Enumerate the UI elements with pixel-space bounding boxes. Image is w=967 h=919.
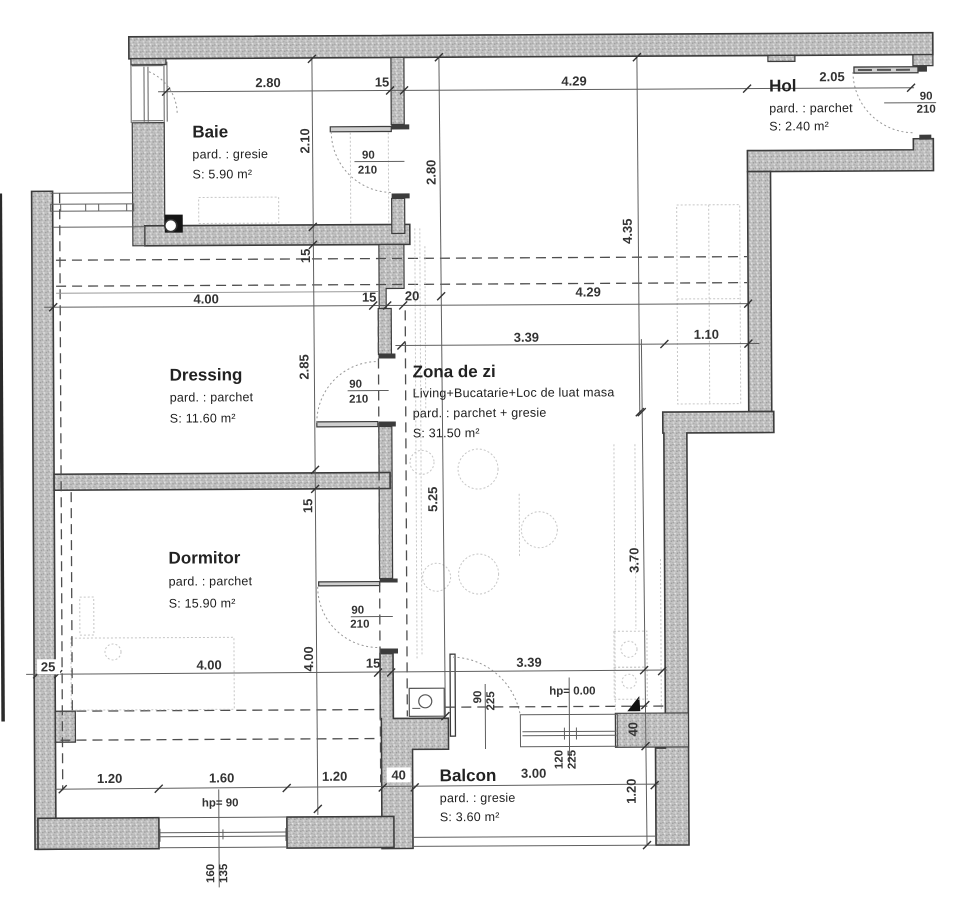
svg-text:2.85: 2.85 — [296, 354, 311, 379]
svg-text:S: 3.60 m²: S: 3.60 m² — [440, 810, 500, 824]
svg-text:20: 20 — [405, 288, 420, 303]
svg-text:S: 2.40 m²: S: 2.40 m² — [769, 119, 829, 133]
svg-text:2.80: 2.80 — [423, 160, 438, 185]
svg-text:Baie: Baie — [192, 122, 228, 141]
svg-text:3.39: 3.39 — [514, 330, 539, 345]
svg-text:3.70: 3.70 — [626, 548, 641, 573]
svg-text:4.29: 4.29 — [575, 284, 600, 299]
svg-text:25: 25 — [41, 659, 56, 674]
svg-text:hp= 90: hp= 90 — [202, 797, 239, 809]
svg-text:90: 90 — [362, 150, 375, 162]
svg-text:15: 15 — [366, 656, 381, 671]
svg-text:4.35: 4.35 — [620, 219, 635, 244]
svg-text:Balcon: Balcon — [440, 766, 497, 785]
svg-text:15: 15 — [375, 74, 390, 89]
svg-text:2.80: 2.80 — [255, 75, 280, 90]
svg-text:pard. : parchet: pard. : parchet — [170, 390, 254, 404]
svg-text:S: 5.90 m²: S: 5.90 m² — [192, 167, 252, 181]
svg-text:90: 90 — [349, 379, 362, 391]
svg-text:15: 15 — [300, 499, 315, 514]
svg-text:pard. : gresie: pard. : gresie — [440, 791, 516, 805]
svg-text:15: 15 — [298, 249, 313, 264]
svg-text:225: 225 — [485, 691, 497, 711]
svg-text:40: 40 — [625, 722, 640, 737]
svg-text:S: 31.50 m²: S: 31.50 m² — [413, 426, 480, 440]
svg-text:90: 90 — [920, 91, 933, 103]
svg-text:Dressing: Dressing — [170, 365, 243, 384]
svg-text:Dormitor: Dormitor — [168, 548, 240, 567]
svg-text:1.20: 1.20 — [97, 771, 122, 786]
svg-text:90: 90 — [472, 691, 484, 704]
svg-text:135: 135 — [218, 863, 230, 883]
svg-text:1.20: 1.20 — [322, 769, 347, 784]
svg-text:210: 210 — [349, 394, 368, 406]
svg-text:40: 40 — [391, 767, 406, 782]
svg-text:3.39: 3.39 — [516, 655, 541, 670]
svg-text:4.00: 4.00 — [196, 657, 221, 672]
svg-text:120: 120 — [554, 750, 566, 769]
svg-text:Hol: Hol — [769, 76, 796, 95]
svg-text:2.10: 2.10 — [297, 128, 312, 153]
svg-text:Zona de zi: Zona de zi — [412, 362, 495, 381]
svg-text:210: 210 — [350, 619, 369, 631]
svg-text:160: 160 — [205, 864, 217, 883]
svg-text:5.25: 5.25 — [425, 487, 440, 512]
svg-text:1.20: 1.20 — [624, 779, 639, 804]
svg-text:pard. : gresie: pard. : gresie — [192, 147, 268, 161]
svg-text:3.00: 3.00 — [521, 766, 546, 781]
svg-text:210: 210 — [358, 165, 377, 177]
svg-text:S: 11.60 m²: S: 11.60 m² — [170, 411, 236, 425]
svg-text:1.10: 1.10 — [694, 327, 719, 342]
svg-text:210: 210 — [917, 104, 936, 116]
svg-text:1.60: 1.60 — [209, 770, 234, 785]
svg-text:15: 15 — [362, 290, 377, 305]
svg-text:pard. : parchet + gresie: pard. : parchet + gresie — [413, 406, 547, 421]
svg-text:90: 90 — [351, 605, 364, 617]
svg-text:hp= 0.00: hp= 0.00 — [549, 685, 595, 697]
svg-text:S: 15.90 m²: S: 15.90 m² — [169, 596, 236, 610]
svg-text:2.05: 2.05 — [819, 69, 844, 84]
svg-text:pard. : parchet: pard. : parchet — [169, 574, 253, 588]
svg-text:4.29: 4.29 — [561, 73, 586, 88]
svg-text:4.00: 4.00 — [301, 646, 316, 671]
svg-text:4.00: 4.00 — [193, 291, 218, 306]
svg-text:Living+Bucatarie+Loc de luat m: Living+Bucatarie+Loc de luat masa — [413, 385, 615, 400]
svg-text:pard. : parchet: pard. : parchet — [769, 101, 853, 115]
svg-text:225: 225 — [567, 749, 579, 769]
